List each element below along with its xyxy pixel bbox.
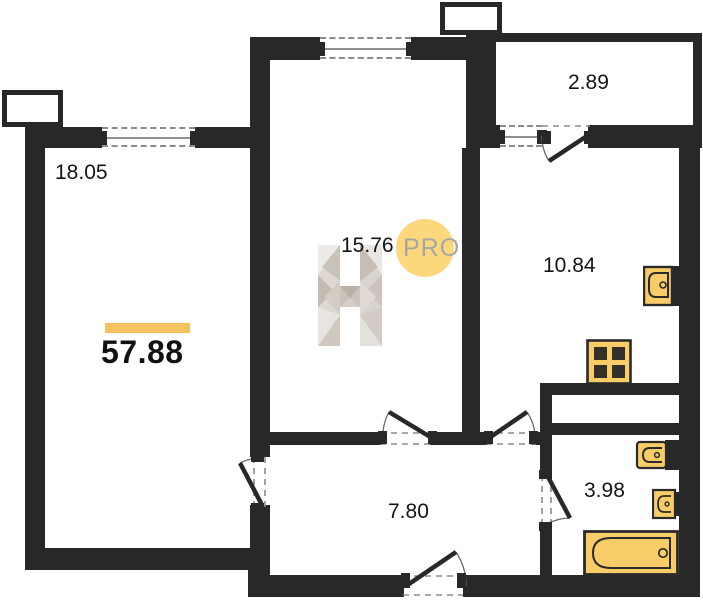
total-area-accent-bar — [105, 323, 190, 333]
watermark-h-logo — [318, 245, 382, 347]
wall — [552, 423, 679, 435]
room-area-hallway: 7.80 — [388, 500, 429, 524]
door-kitchen — [480, 405, 542, 450]
wall — [25, 127, 102, 148]
wash-sink-icon — [652, 487, 682, 521]
window — [102, 127, 195, 148]
stove-icon — [586, 339, 632, 385]
toilet-icon — [635, 438, 683, 472]
window — [320, 37, 411, 60]
floor-plan: PRO 18.05 15.76 2.89 10.84 7.80 3.98 57.… — [0, 0, 703, 600]
door-bedroom — [370, 405, 440, 450]
room-area-loggia: 2.89 — [568, 71, 609, 95]
wall — [463, 575, 679, 597]
window — [500, 125, 542, 148]
wall — [588, 125, 700, 148]
wall — [679, 147, 700, 597]
exterior-box-top-right — [440, 2, 502, 35]
total-area-label: 57.88 — [101, 334, 184, 371]
wall — [25, 127, 45, 570]
wall — [25, 548, 270, 570]
kitchen-sink-icon — [643, 264, 685, 308]
room-area-bathroom: 3.98 — [584, 479, 625, 503]
wall — [466, 33, 702, 42]
wall — [462, 148, 480, 445]
wall — [250, 37, 270, 457]
door-loggia — [540, 120, 595, 170]
exterior-box-top-left — [2, 90, 63, 127]
bathtub-icon — [583, 530, 680, 576]
room-area-living: 18.05 — [55, 161, 108, 185]
room-area-bedroom: 15.76 — [341, 234, 394, 258]
wall — [262, 432, 382, 445]
room-area-kitchen: 10.84 — [543, 254, 596, 278]
door-entrance — [395, 545, 473, 600]
door-living — [225, 450, 275, 515]
wall — [248, 575, 404, 597]
door-bathroom — [535, 465, 580, 535]
pro-badge-label: PRO — [403, 234, 460, 263]
wall — [250, 37, 320, 60]
